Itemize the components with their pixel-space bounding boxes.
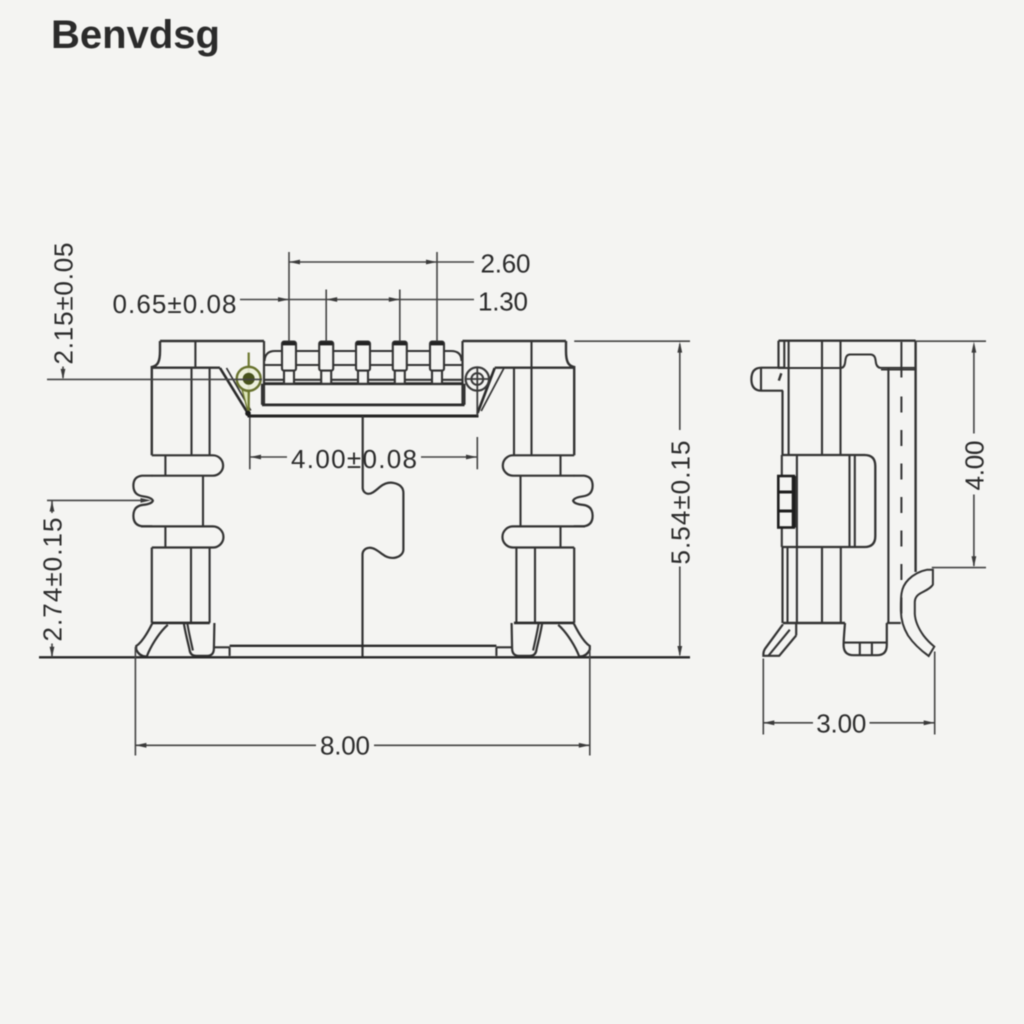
svg-text:4.00±0.08: 4.00±0.08: [291, 444, 417, 474]
svg-text:1.30: 1.30: [478, 287, 528, 317]
svg-text:2.15±0.05: 2.15±0.05: [49, 243, 79, 365]
svg-text:0.65±0.08: 0.65±0.08: [113, 289, 237, 319]
svg-text:2.60: 2.60: [481, 249, 531, 279]
svg-text:5.54±0.15: 5.54±0.15: [665, 441, 695, 565]
svg-text:Benvdsg: Benvdsg: [51, 13, 220, 57]
svg-text:8.00: 8.00: [320, 731, 370, 761]
svg-text:2.74±0.15: 2.74±0.15: [38, 518, 68, 642]
svg-text:3.00: 3.00: [816, 709, 866, 739]
svg-text:4.00: 4.00: [959, 441, 989, 491]
